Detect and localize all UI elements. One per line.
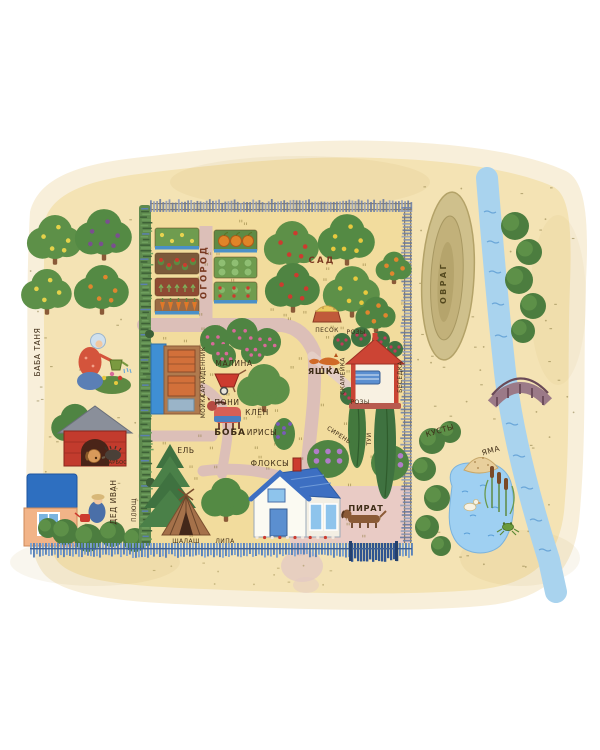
label-dog-barbos: БАРБОС	[105, 460, 127, 466]
label-raspberry: МАЛИНА	[215, 359, 252, 368]
label-phlox: ФЛОКСЫ	[251, 459, 290, 468]
label-bench: СКАМЕЙКА	[340, 357, 347, 395]
garden-bench	[354, 371, 380, 384]
vegetable-bed	[155, 228, 199, 250]
label-linden: ЛИПА	[215, 538, 235, 545]
vegetable-bed	[214, 230, 257, 253]
vegetable-bed	[155, 253, 199, 274]
label-stall: ДЕННИК	[200, 346, 207, 375]
label-thujas: ТУИ	[366, 432, 373, 446]
label-dog-pirat: ПИРАТ	[348, 503, 383, 513]
label-roses-lower: РОЗЫ	[350, 399, 369, 406]
vegetable-bed	[214, 282, 257, 304]
label-gazebo: БЕСЕДКА	[397, 361, 404, 393]
illustrated-yard-map: ОГОРОД САД ПЕСОК РОЗЫ РОЗЫ СКАМЕЙКА БЕСЕ…	[0, 0, 600, 750]
label-pony-boba: БОБА	[214, 428, 246, 438]
label-orchard: САД	[309, 256, 336, 266]
label-baba-tanya: БАБА ТАНЯ	[33, 328, 42, 377]
vegetable-bed	[214, 257, 257, 278]
map-canvas: ОГОРОД САД ПЕСОК РОЗЫ РОЗЫ СКАМЕЙКА БЕСЕ…	[0, 0, 600, 750]
label-irises: ИРИСЫ	[247, 428, 278, 437]
label-sand: ПЕСОК	[315, 327, 339, 334]
label-ded-ivan: ДЕД ИВАН	[109, 479, 118, 524]
label-vegetable-garden: ОГОРОД	[200, 245, 210, 299]
label-ravine: ОВРАГ	[439, 262, 448, 304]
vegetable-bed	[155, 278, 199, 296]
label-pony: ПОНИ	[214, 398, 239, 407]
label-wash: МОЙКА	[200, 393, 207, 418]
pond	[449, 462, 513, 553]
label-ivy: ПЛЮЩ	[131, 498, 138, 522]
label-spruce: ЕЛЬ	[177, 446, 194, 455]
label-maple: КЛЁН	[245, 408, 269, 417]
stable-shed	[151, 344, 200, 414]
label-hut: ШАЛАШ	[172, 538, 200, 545]
label-roses-upper: РОЗЫ	[346, 329, 365, 336]
vegetable-bed	[155, 298, 199, 315]
label-fox-yashka: ЯШКА	[308, 366, 340, 376]
